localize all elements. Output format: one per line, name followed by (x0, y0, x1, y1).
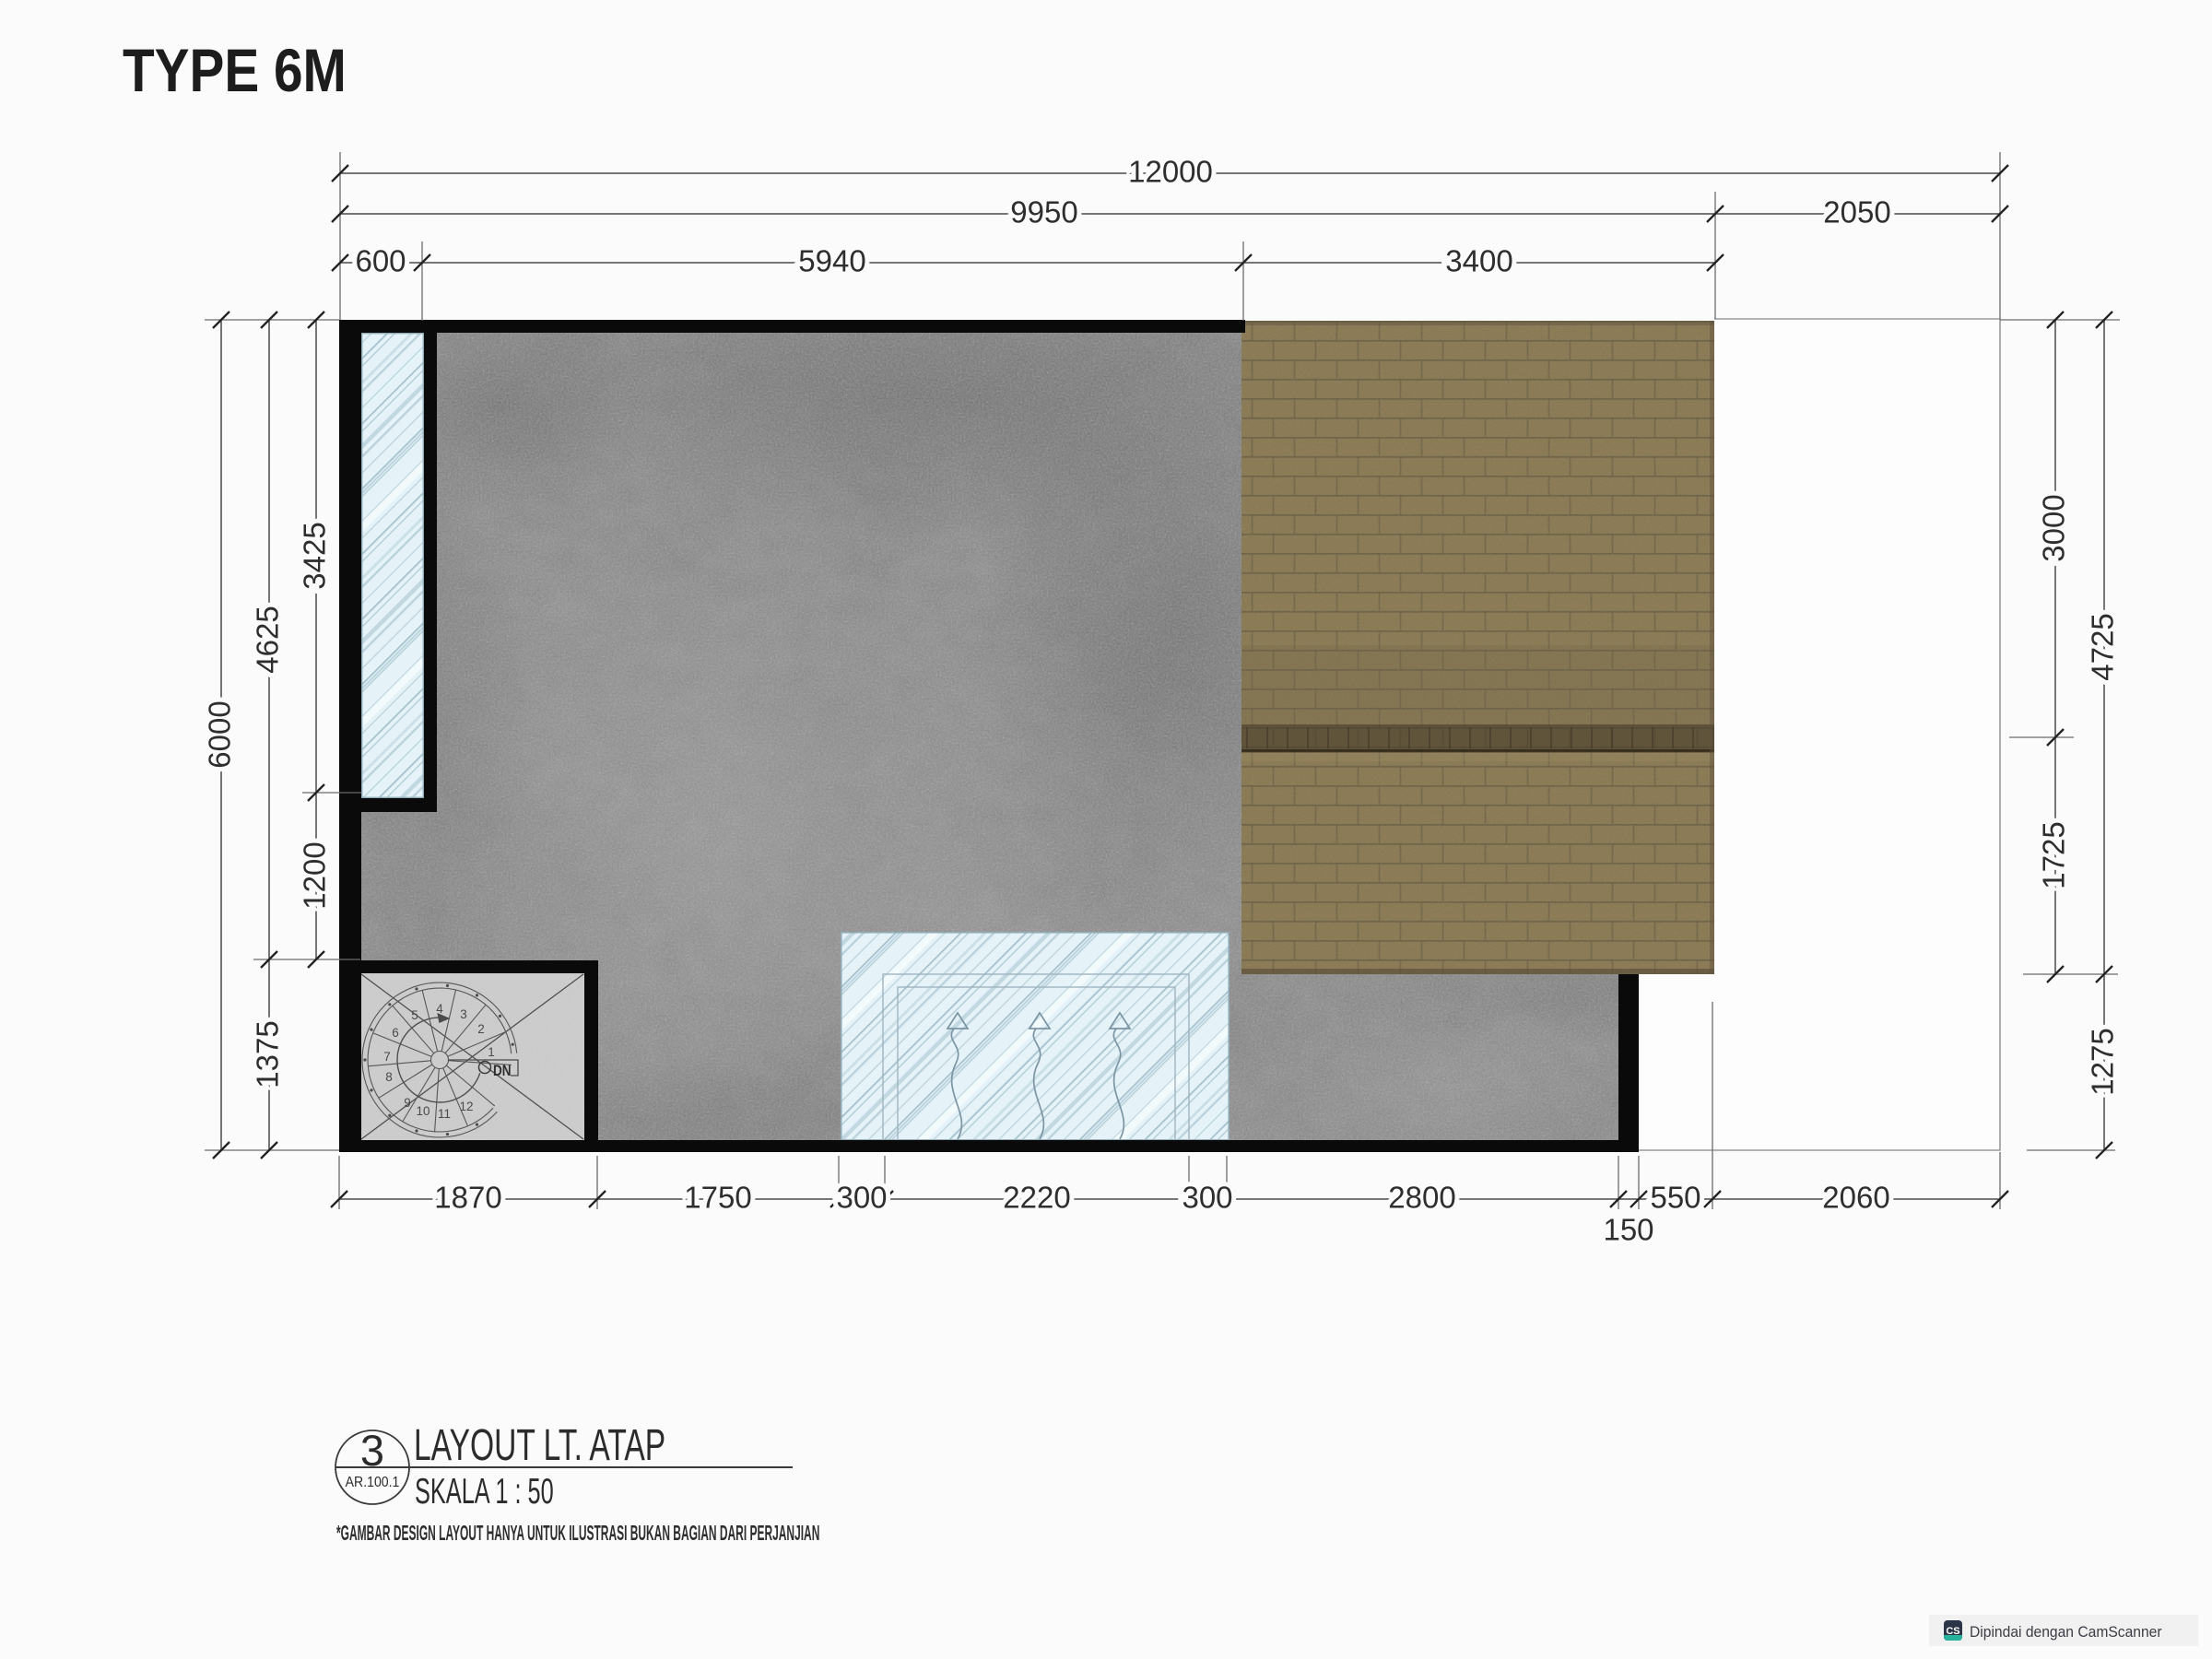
svg-text:2800: 2800 (1388, 1181, 1455, 1215)
svg-text:*GAMBAR DESIGN LAYOUT HANYA UN: *GAMBAR DESIGN LAYOUT HANYA UNTUK ILUSTR… (336, 1521, 819, 1545)
svg-text:12000: 12000 (1128, 155, 1213, 189)
svg-text:2: 2 (477, 1022, 485, 1036)
svg-text:6000: 6000 (203, 700, 237, 768)
svg-text:9: 9 (404, 1096, 411, 1110)
svg-text:300: 300 (836, 1181, 887, 1215)
svg-text:3: 3 (360, 1426, 384, 1475)
svg-text:DN: DN (493, 1063, 512, 1080)
svg-text:2060: 2060 (1822, 1181, 1889, 1215)
svg-text:3000: 3000 (2037, 494, 2071, 561)
svg-text:LAYOUT LT. ATAP: LAYOUT LT. ATAP (414, 1419, 665, 1469)
svg-text:2220: 2220 (1003, 1181, 1070, 1215)
svg-text:9950: 9950 (1010, 195, 1077, 229)
svg-text:4625: 4625 (251, 606, 285, 673)
svg-text:3425: 3425 (298, 522, 332, 589)
svg-text:300: 300 (1182, 1181, 1232, 1215)
svg-text:1750: 1750 (684, 1181, 751, 1215)
svg-text:1725: 1725 (2037, 821, 2071, 888)
svg-text:550: 550 (1650, 1181, 1700, 1215)
svg-text:8: 8 (385, 1070, 393, 1084)
svg-text:SKALA 1 : 50: SKALA 1 : 50 (415, 1470, 554, 1511)
svg-text:5: 5 (411, 1008, 418, 1022)
svg-text:3: 3 (460, 1007, 467, 1021)
svg-text:3400: 3400 (1445, 244, 1512, 278)
svg-text:10: 10 (416, 1104, 429, 1118)
svg-text:TYPE 6M: TYPE 6M (123, 37, 347, 105)
svg-text:AR.100.1: AR.100.1 (346, 1474, 400, 1490)
svg-text:Dipindai dengan CamScanner: Dipindai dengan CamScanner (1970, 1623, 2162, 1641)
svg-text:4: 4 (436, 1002, 443, 1016)
svg-text:4725: 4725 (2086, 613, 2120, 680)
svg-text:1: 1 (488, 1045, 495, 1059)
svg-text:CS: CS (1946, 1626, 1959, 1637)
svg-text:600: 600 (355, 244, 406, 278)
svg-text:11: 11 (438, 1107, 451, 1121)
svg-text:1200: 1200 (298, 841, 332, 909)
svg-text:2050: 2050 (1823, 195, 1890, 229)
svg-text:5940: 5940 (798, 244, 865, 278)
svg-text:1870: 1870 (434, 1181, 501, 1215)
svg-text:7: 7 (383, 1050, 391, 1064)
svg-text:150: 150 (1603, 1213, 1653, 1247)
svg-text:1275: 1275 (2086, 1028, 2120, 1095)
svg-text:1375: 1375 (251, 1020, 285, 1088)
svg-text:12: 12 (459, 1100, 473, 1113)
svg-text:6: 6 (392, 1026, 399, 1040)
